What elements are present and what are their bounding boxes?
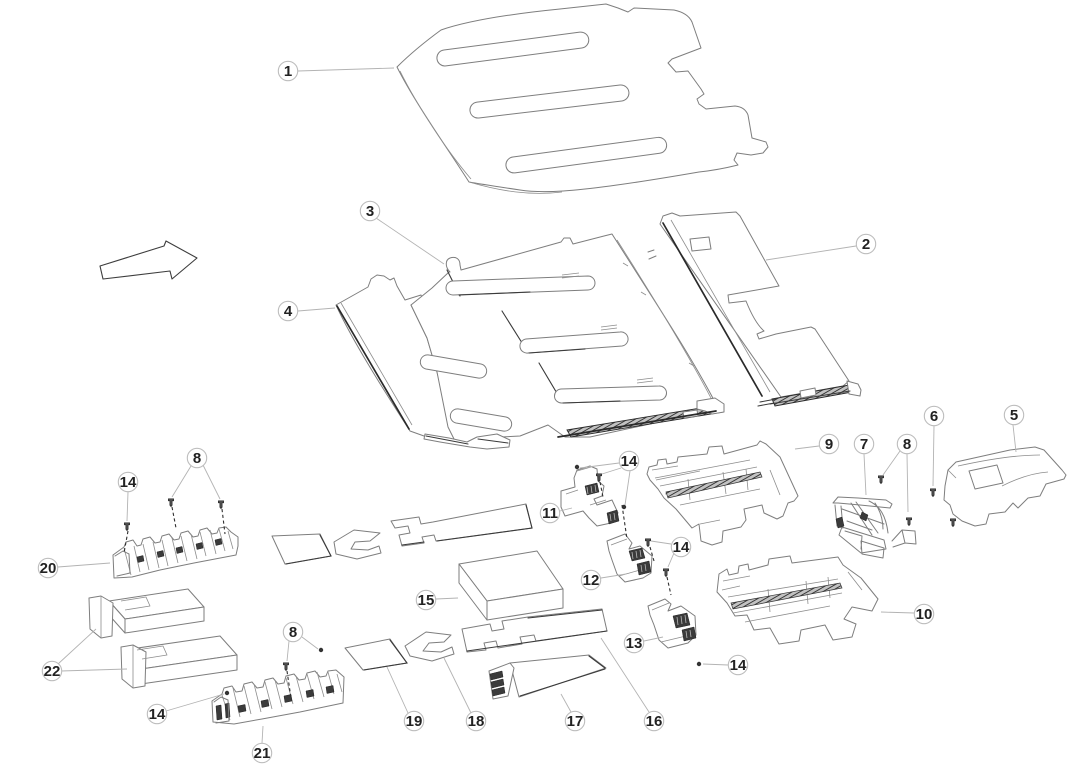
svg-text:4: 4 [284, 303, 293, 320]
svg-text:8: 8 [289, 624, 297, 641]
svg-text:8: 8 [193, 450, 201, 467]
svg-text:14: 14 [673, 539, 690, 556]
svg-text:7: 7 [860, 436, 868, 453]
svg-text:3: 3 [366, 203, 374, 220]
svg-text:14: 14 [120, 474, 137, 491]
svg-text:19: 19 [406, 713, 423, 730]
svg-text:12: 12 [583, 572, 600, 589]
svg-text:5: 5 [1010, 407, 1018, 424]
svg-text:15: 15 [418, 592, 435, 609]
svg-text:13: 13 [626, 635, 643, 652]
svg-text:1: 1 [284, 63, 292, 80]
svg-text:18: 18 [468, 713, 485, 730]
svg-text:16: 16 [646, 713, 663, 730]
svg-text:14: 14 [621, 453, 638, 470]
svg-text:22: 22 [44, 663, 61, 680]
svg-text:14: 14 [149, 706, 166, 723]
svg-text:6: 6 [930, 408, 938, 425]
svg-text:11: 11 [542, 505, 558, 522]
svg-text:17: 17 [567, 713, 584, 730]
svg-text:2: 2 [862, 236, 870, 253]
svg-text:20: 20 [40, 560, 57, 577]
svg-text:8: 8 [903, 436, 911, 453]
svg-text:9: 9 [825, 436, 833, 453]
svg-text:21: 21 [254, 745, 271, 762]
svg-text:14: 14 [730, 657, 747, 674]
svg-text:10: 10 [916, 606, 933, 623]
